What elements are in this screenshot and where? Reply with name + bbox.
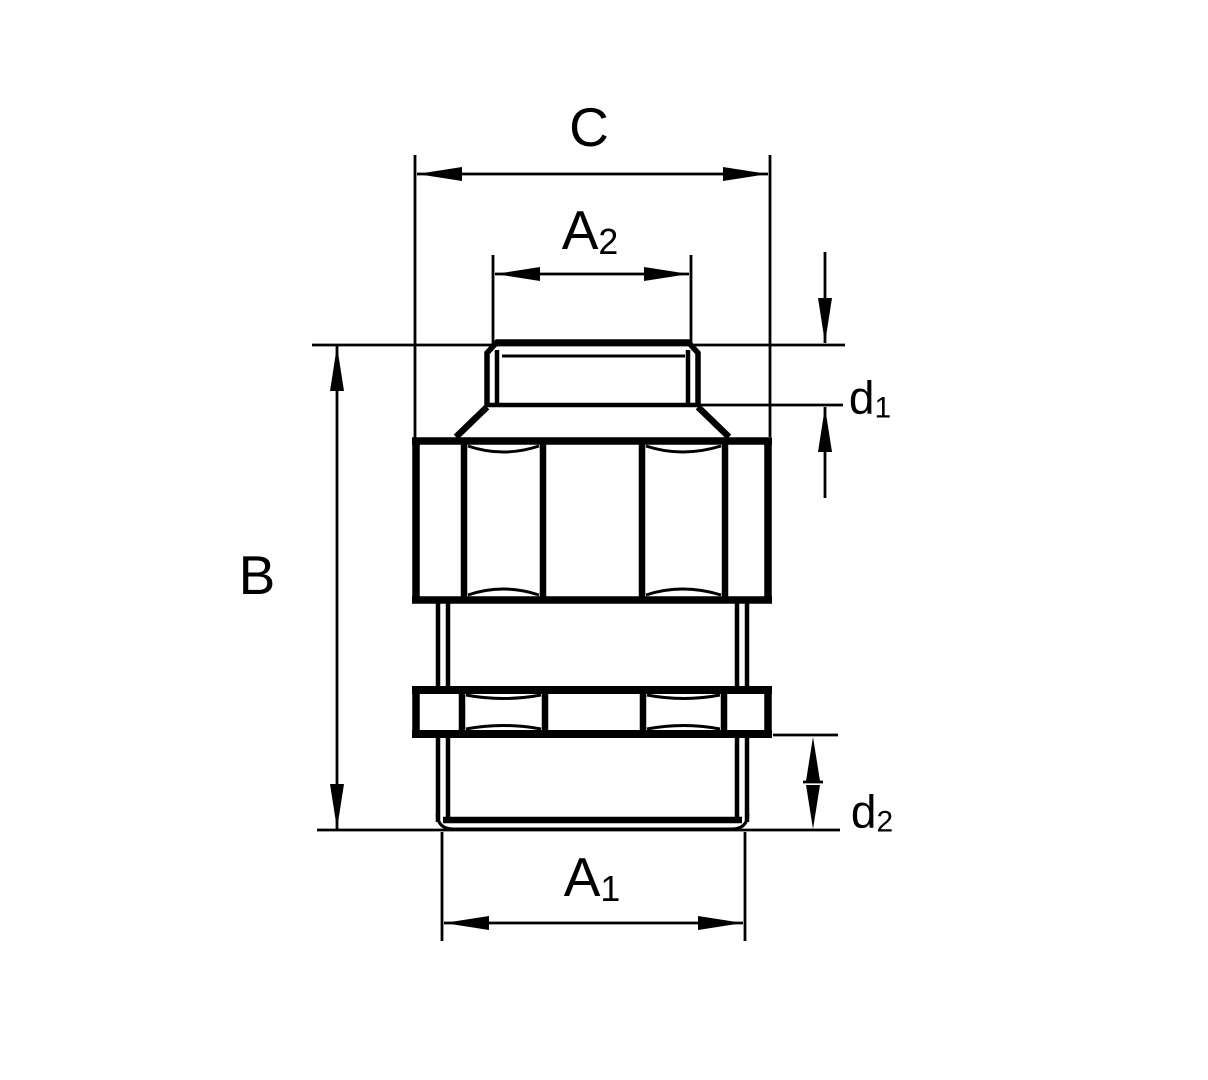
conical-transition <box>456 407 729 437</box>
dim-label-a1-sub: 1 <box>600 869 620 909</box>
dim-label-d2-text: d <box>851 785 877 837</box>
mid-thread-stem <box>438 603 747 688</box>
drawing-canvas: C A2 B d1 d2 A1 <box>0 0 1208 1080</box>
dim-label-a1-text: A <box>564 846 601 908</box>
dim-label-a2-text: A <box>562 199 599 261</box>
dim-label-d1-text: d <box>849 371 875 423</box>
technical-drawing <box>0 0 1208 1080</box>
dim-label-a2: A2 <box>562 203 619 261</box>
dim-label-c: C <box>569 100 609 158</box>
dim-label-a1: A1 <box>564 850 621 908</box>
dim-label-a2-sub: 2 <box>598 222 618 262</box>
dim-label-b-text: B <box>239 544 276 606</box>
dim-label-c-text: C <box>569 96 609 158</box>
dim-label-b: B <box>239 548 276 606</box>
dim-label-d2: d2 <box>851 788 893 837</box>
dimension-c <box>415 155 770 438</box>
bottom-thread-stem <box>437 738 748 829</box>
dim-label-d1: d1 <box>849 374 891 423</box>
locknut <box>412 686 772 738</box>
dim-label-d2-sub: 2 <box>876 806 893 839</box>
hex-body <box>412 438 772 603</box>
top-thread-collar <box>485 342 700 405</box>
dimension-a2 <box>493 255 691 344</box>
dim-label-d1-sub: 1 <box>874 392 891 425</box>
dimension-d2 <box>773 735 838 829</box>
